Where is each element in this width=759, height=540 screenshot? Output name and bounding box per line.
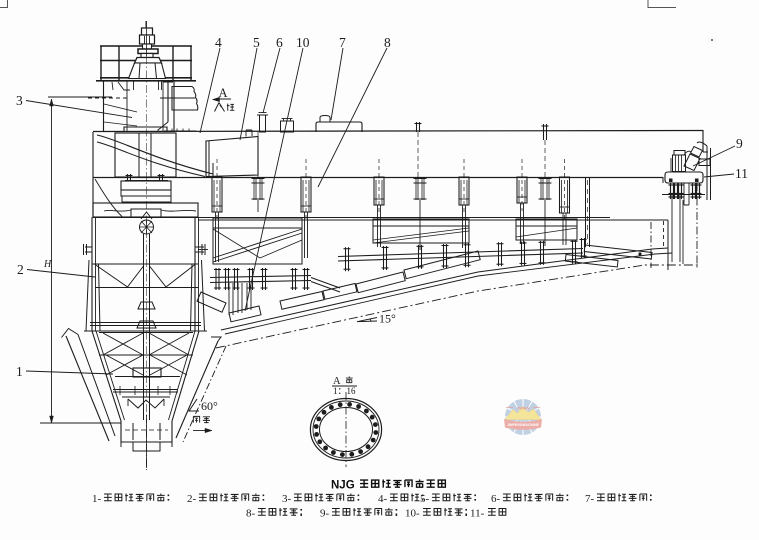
svg-text:4: 4 bbox=[215, 35, 222, 50]
svg-text:1-: 1- bbox=[92, 493, 102, 505]
svg-text:NJG: NJG bbox=[331, 480, 355, 492]
svg-text:2: 2 bbox=[17, 262, 24, 277]
svg-text:H: H bbox=[43, 259, 52, 270]
svg-text:JINPENGMACHINE: JINPENGMACHINE bbox=[507, 423, 540, 427]
svg-text:3: 3 bbox=[16, 93, 23, 108]
svg-text:4-: 4- bbox=[378, 493, 388, 505]
svg-text:10: 10 bbox=[296, 35, 310, 50]
svg-text:11: 11 bbox=[735, 166, 748, 181]
svg-text:10-: 10- bbox=[405, 508, 420, 520]
svg-text:1: 1 bbox=[16, 364, 23, 379]
svg-text:JNPEN: JNPEN bbox=[516, 405, 529, 410]
svg-text:6-: 6- bbox=[491, 493, 501, 505]
svg-text:7-: 7- bbox=[585, 493, 595, 505]
svg-text:8: 8 bbox=[384, 35, 391, 50]
svg-text:2-: 2- bbox=[187, 493, 197, 505]
svg-text:9: 9 bbox=[736, 136, 743, 151]
svg-text:60°: 60° bbox=[201, 399, 218, 413]
svg-text:8-: 8- bbox=[246, 508, 256, 520]
svg-text:7: 7 bbox=[339, 35, 346, 50]
svg-text:15°: 15° bbox=[379, 312, 396, 326]
svg-text:1：16: 1：16 bbox=[333, 386, 356, 396]
svg-text:9-: 9- bbox=[320, 508, 330, 520]
svg-text:6: 6 bbox=[276, 35, 283, 50]
svg-text:11-: 11- bbox=[470, 508, 485, 520]
svg-text:5: 5 bbox=[253, 35, 260, 50]
svg-text:5-: 5- bbox=[420, 493, 430, 505]
svg-text:3-: 3- bbox=[282, 493, 292, 505]
svg-text:A: A bbox=[219, 86, 228, 100]
